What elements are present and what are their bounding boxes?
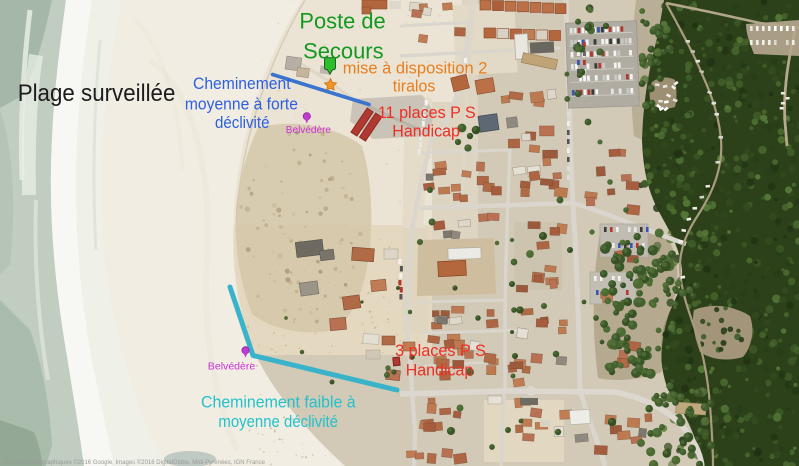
svg-text:11 places P S: 11 places P S: [378, 104, 476, 122]
svg-text:Handicap: Handicap: [406, 362, 474, 380]
svg-text:Belvédère: Belvédère: [286, 124, 331, 136]
svg-text:Plage surveillée: Plage surveillée: [18, 80, 176, 107]
svg-text:Cheminement faible à: Cheminement faible à: [201, 394, 356, 412]
svg-text:déclivité: déclivité: [215, 114, 270, 132]
svg-text:moyenne déclivité: moyenne déclivité: [218, 413, 338, 431]
svg-text:Données cartographiques ©2016: Données cartographiques ©2016 Google, Im…: [3, 459, 266, 466]
svg-text:Cheminement: Cheminement: [193, 75, 291, 93]
svg-text:3 places P S: 3 places P S: [395, 342, 486, 360]
svg-text:tiralos: tiralos: [393, 76, 436, 95]
svg-text:Belvédère: Belvédère: [208, 361, 256, 373]
svg-text:moyenne à forte: moyenne à forte: [185, 96, 298, 114]
svg-text:Poste de: Poste de: [299, 8, 385, 33]
svg-text:mise à disposition 2: mise à disposition 2: [343, 58, 488, 77]
svg-text:Handicap: Handicap: [392, 123, 460, 141]
